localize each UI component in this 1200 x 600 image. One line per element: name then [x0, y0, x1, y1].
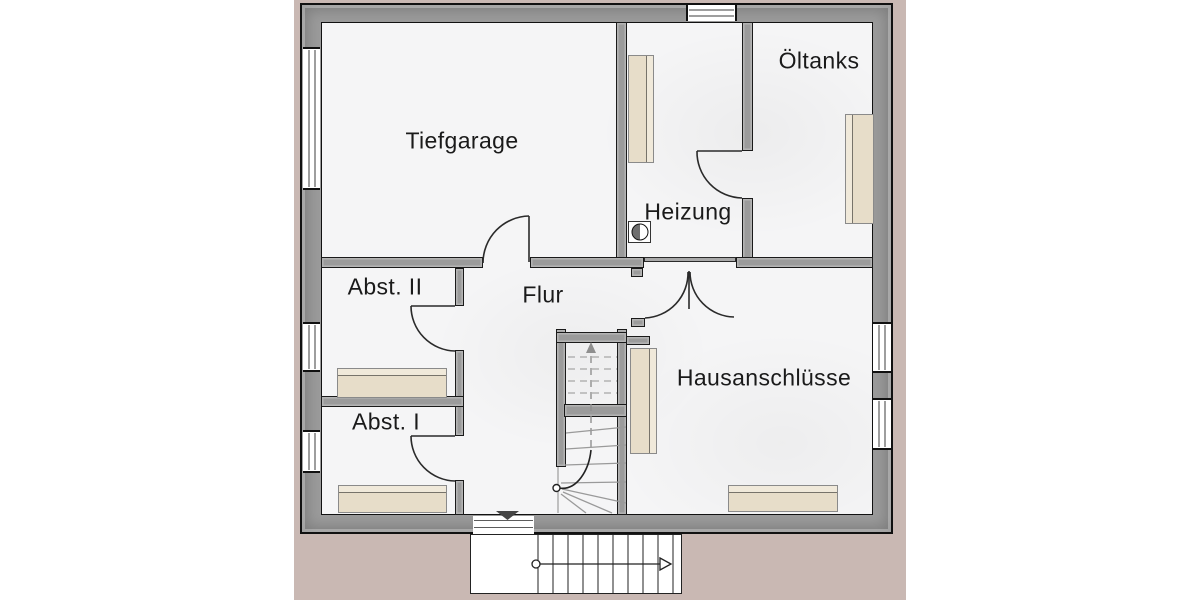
- threshold-line: [474, 520, 533, 521]
- door-pier-upper: [631, 268, 643, 277]
- window-mullion: [308, 325, 315, 369]
- wall-horizontal-right: [736, 257, 873, 268]
- window-mullion: [308, 433, 315, 470]
- shelf-heizung: [628, 55, 654, 163]
- shelf-hausanschluesse-vertical: [630, 348, 657, 454]
- stair-shaft-wall-mid: [564, 404, 627, 417]
- half-filled-circle-icon: [631, 224, 648, 241]
- shelf-rail: [339, 486, 446, 493]
- room-label-tiefgarage: Tiefgarage: [405, 128, 518, 155]
- window-abst1: [303, 430, 320, 473]
- room-label-abst2: Abst. II: [348, 274, 423, 301]
- wall-flur-abst-mid: [455, 350, 464, 436]
- wall-heizung-oeltanks-upper: [742, 22, 753, 151]
- shelf-rail: [649, 349, 656, 453]
- shelf-rail: [338, 369, 446, 376]
- stair-shaft-wall-left: [556, 329, 566, 467]
- floor-plan-canvas: Tiefgarage Öltanks Heizung Abst. II Abst…: [0, 0, 1200, 600]
- window-mullion: [689, 10, 734, 17]
- window-heizung-top: [686, 5, 737, 21]
- shelf-abst2: [337, 368, 447, 398]
- shelf-hausanschluesse-horizontal: [728, 485, 838, 512]
- interior-floor: [321, 22, 873, 515]
- room-label-hausanschluesse: Hausanschlüsse: [677, 365, 851, 392]
- entrance-threshold: [473, 516, 534, 535]
- window-abst2: [303, 322, 320, 372]
- double-door-lintel: [644, 257, 736, 262]
- shelf-abst1: [338, 485, 447, 513]
- window-mullion: [308, 50, 315, 187]
- door-pier-lower: [631, 318, 645, 327]
- stair-shaft-wall-top: [556, 332, 627, 343]
- window-mullion: [879, 401, 886, 447]
- wall-horizontal-mid: [530, 257, 644, 268]
- wall-flur-abst1-lower: [455, 480, 464, 515]
- wall-horizontal-left: [321, 257, 483, 268]
- room-label-flur: Flur: [522, 282, 563, 309]
- wall-tiefgarage-heizung: [616, 22, 627, 268]
- window-mullion: [879, 325, 886, 370]
- threshold-line: [474, 527, 533, 528]
- room-label-heizung: Heizung: [644, 199, 731, 226]
- room-label-abst1: Abst. I: [352, 409, 420, 436]
- shelf-rail: [729, 486, 837, 493]
- wall-flur-abst2-upper: [455, 268, 464, 306]
- window-hausanschluesse-2: [873, 398, 891, 450]
- room-label-oeltanks: Öltanks: [779, 48, 860, 75]
- shelf-rail: [846, 115, 853, 223]
- window-hausanschluesse-1: [873, 322, 891, 373]
- oil-tank: [845, 114, 874, 224]
- exterior-staircase: [470, 534, 682, 594]
- shelf-rail: [646, 56, 653, 162]
- stair-shaft-wall-ext: [626, 336, 650, 345]
- stair-shaft-wall-right: [617, 329, 627, 515]
- window-tiefgarage: [303, 47, 320, 190]
